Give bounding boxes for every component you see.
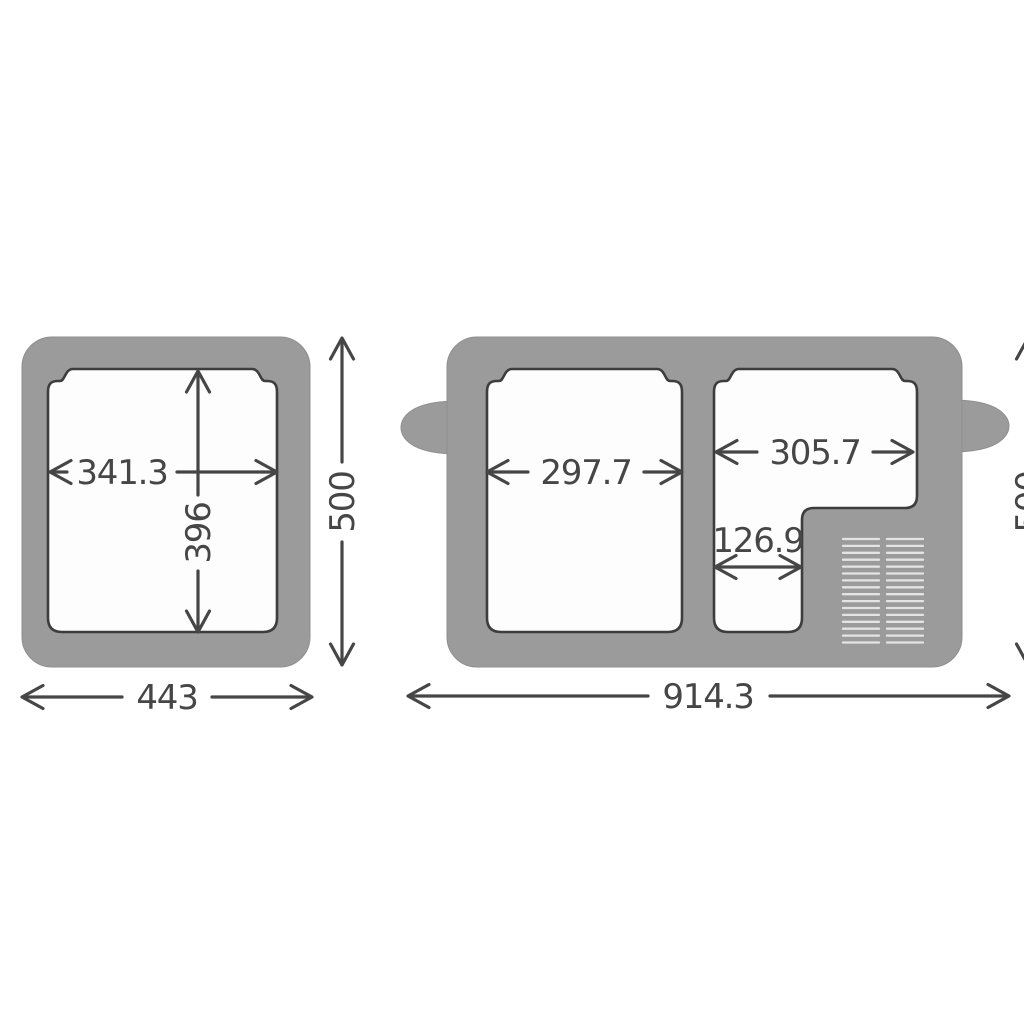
dim-outer-depth-left: 500 [323,338,363,665]
dim-outer-width-left: 443 [22,678,312,718]
diagram-canvas: 341.3 396 500 443 297.7 [0,0,1024,1024]
dim-inner-width-label: 341.3 [76,453,167,493]
right-view: 297.7 305.7 126.9 914.3 500 [401,337,1024,717]
right-view-left-opening [487,369,682,632]
dim-outer-depth-right: 500 [1009,338,1024,665]
dim-left-compartment-label: 297.7 [540,453,631,493]
dimension-diagram: 341.3 396 500 443 297.7 [0,0,1024,1024]
dim-outer-width-right: 914.3 [408,677,1009,717]
left-view: 341.3 396 500 443 [22,337,363,718]
left-handle [401,401,452,454]
dim-outer-width-left-label: 443 [136,678,197,718]
left-view-opening [48,369,277,632]
dim-outer-width-right-label: 914.3 [662,677,753,717]
dim-right-compartment-label: 305.7 [769,433,860,473]
right-handle [958,400,1009,452]
dim-outer-depth-left-label: 500 [323,471,363,532]
dim-inner-depth-label: 396 [179,502,219,563]
dim-lower-compartment-label: 126.9 [712,521,803,561]
dim-outer-depth-right-label: 500 [1009,471,1024,532]
